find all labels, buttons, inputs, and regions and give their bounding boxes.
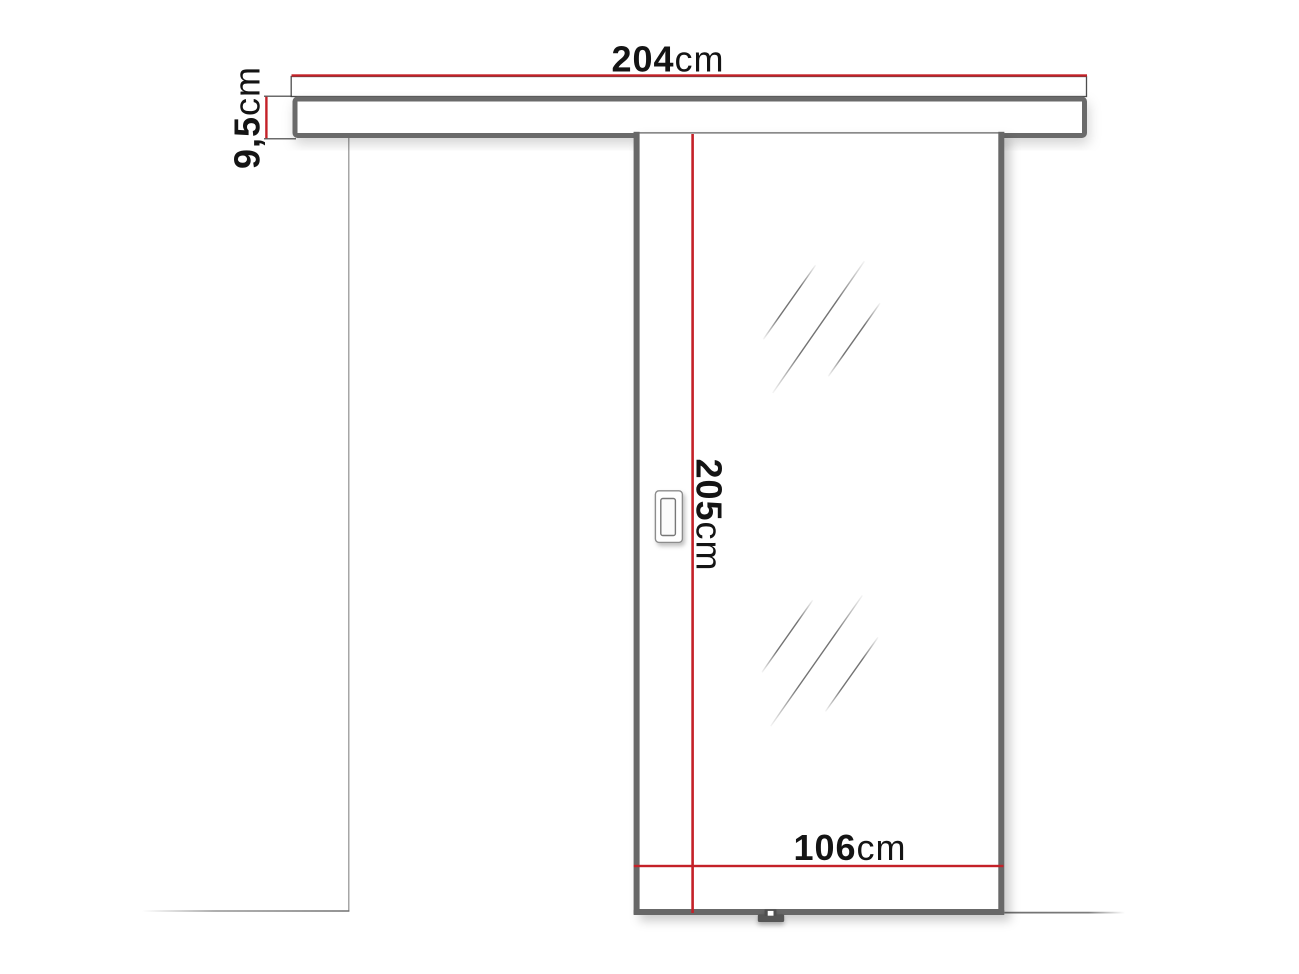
svg-text:204cm: 204cm (611, 39, 724, 80)
svg-text:205cm: 205cm (689, 458, 730, 571)
svg-text:9,5cm: 9,5cm (227, 66, 268, 169)
svg-text:106cm: 106cm (793, 827, 906, 868)
